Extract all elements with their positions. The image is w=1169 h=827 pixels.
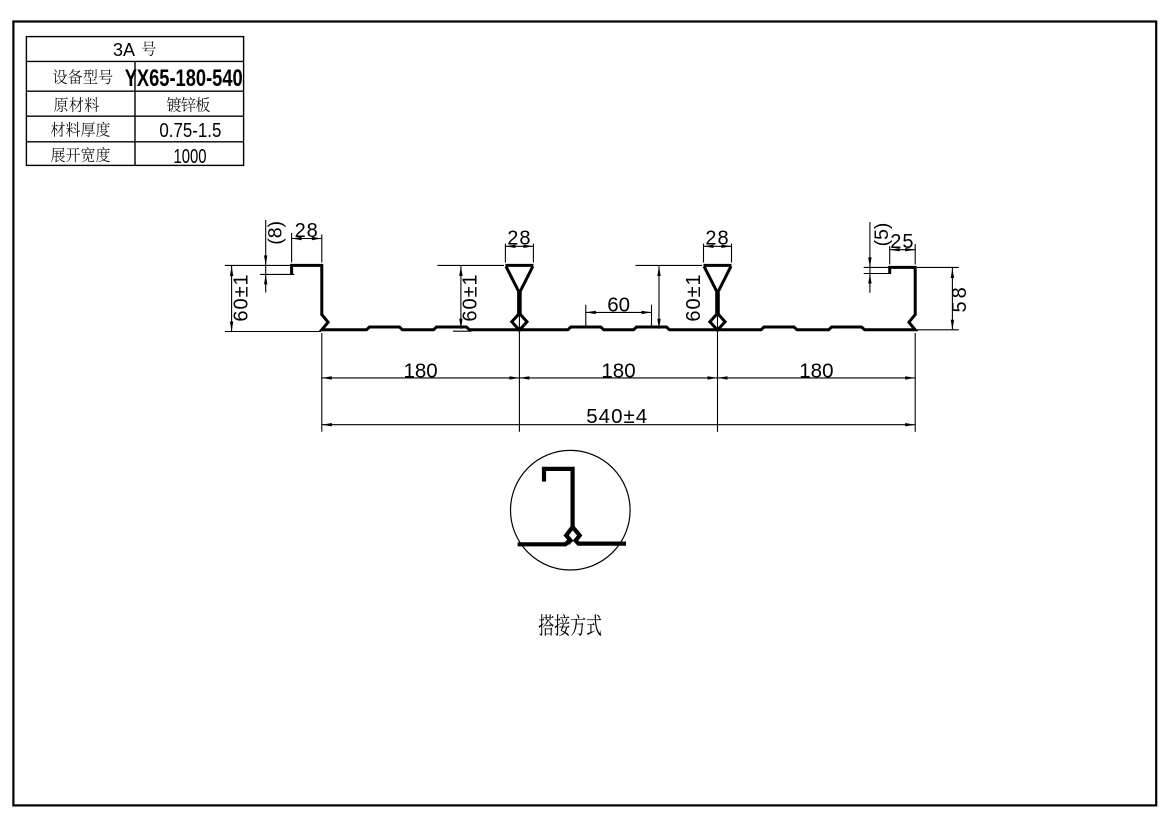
svg-text:3A: 3A — [113, 40, 135, 60]
svg-text:28: 28 — [507, 228, 531, 250]
svg-text:(8): (8) — [265, 221, 287, 245]
svg-text:60±1: 60±1 — [230, 273, 252, 321]
svg-text:180: 180 — [403, 359, 437, 382]
svg-text:28: 28 — [295, 220, 319, 242]
svg-text:0.75-1.5: 0.75-1.5 — [159, 120, 221, 142]
svg-text:60: 60 — [607, 293, 630, 316]
svg-text:28: 28 — [705, 228, 729, 250]
svg-text:25: 25 — [890, 231, 914, 253]
svg-text:180: 180 — [799, 359, 833, 382]
svg-text:180: 180 — [601, 359, 635, 382]
svg-text:540±4: 540±4 — [586, 405, 648, 428]
svg-text:60±1: 60±1 — [683, 273, 705, 321]
svg-text:YX65-180-540: YX65-180-540 — [125, 65, 243, 92]
svg-text:60±1: 60±1 — [460, 273, 482, 321]
svg-text:58: 58 — [949, 284, 971, 312]
svg-text:1000: 1000 — [174, 146, 207, 168]
